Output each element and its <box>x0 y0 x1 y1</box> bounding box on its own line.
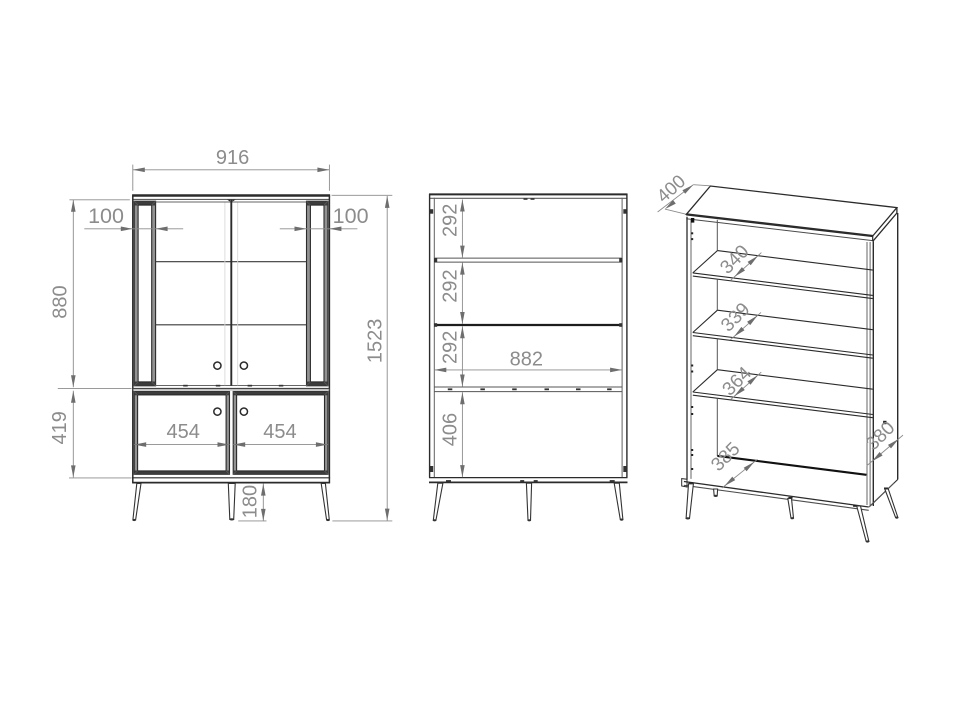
svg-text:419: 419 <box>49 411 71 444</box>
svg-text:100: 100 <box>88 204 124 228</box>
svg-text:292: 292 <box>440 204 462 237</box>
svg-text:454: 454 <box>167 421 200 443</box>
svg-text:1523: 1523 <box>365 319 387 364</box>
svg-text:880: 880 <box>49 285 71 318</box>
svg-text:406: 406 <box>440 413 462 446</box>
svg-text:916: 916 <box>216 147 249 169</box>
svg-text:882: 882 <box>510 349 543 371</box>
svg-text:454: 454 <box>263 421 296 443</box>
svg-text:292: 292 <box>440 331 462 364</box>
svg-text:180: 180 <box>240 485 262 518</box>
svg-text:292: 292 <box>440 269 462 302</box>
svg-text:100: 100 <box>333 204 369 228</box>
